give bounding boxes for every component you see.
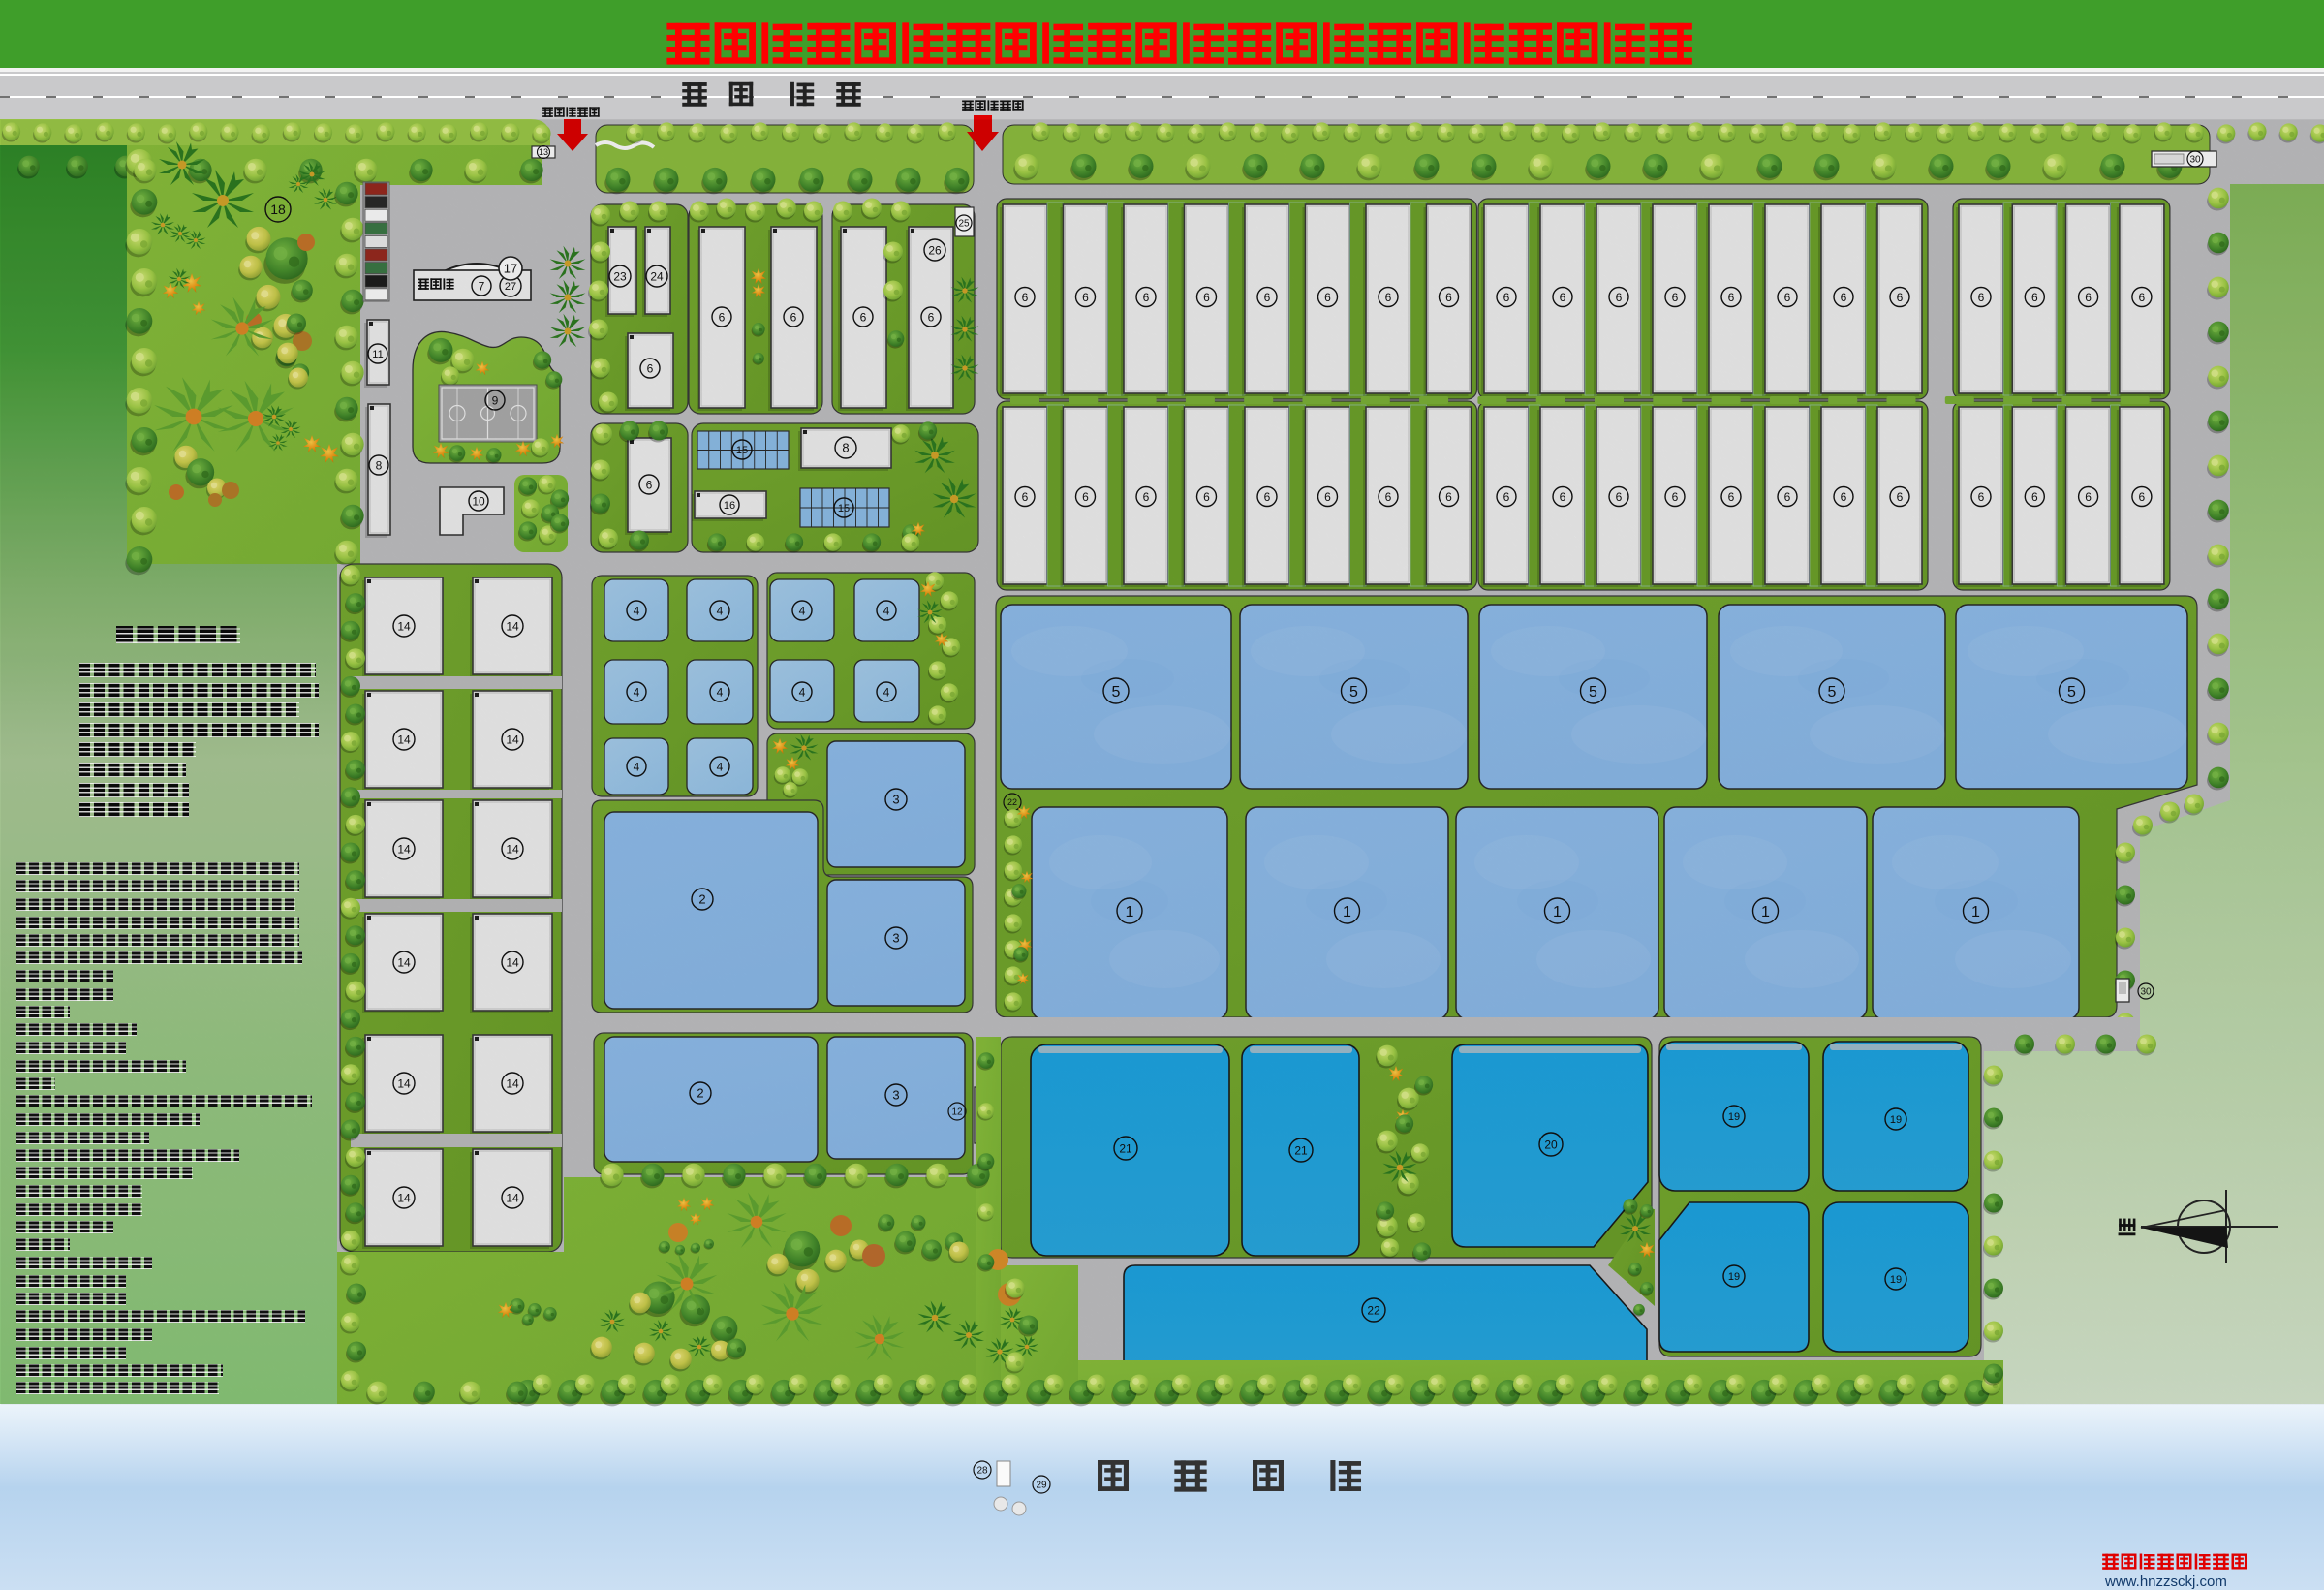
svg-text:29: 29: [1036, 1481, 1047, 1491]
svg-text:www.hnzzsckj.com: www.hnzzsckj.com: [2104, 1574, 2227, 1590]
svg-text:28: 28: [976, 1466, 988, 1477]
